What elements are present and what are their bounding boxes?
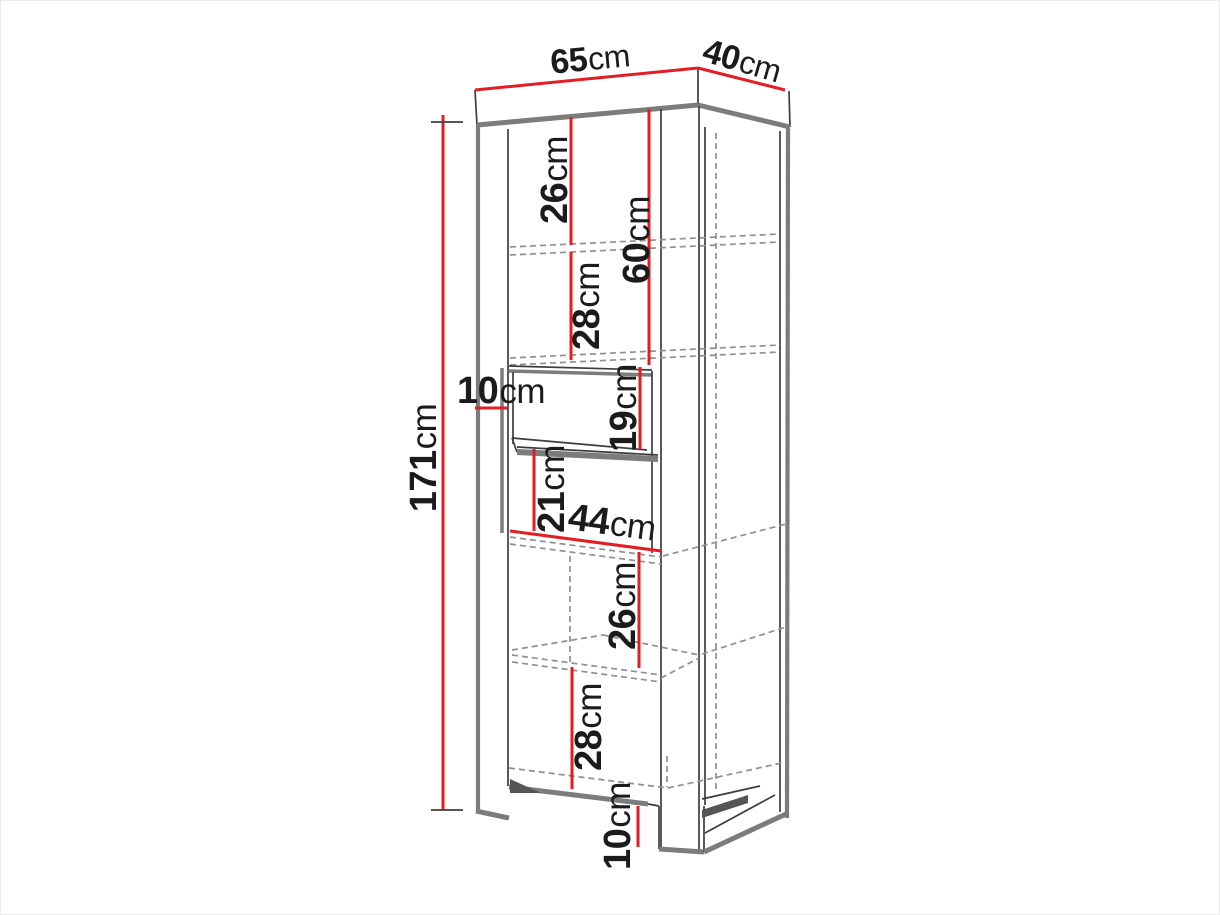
shelf4-right-dashed — [661, 658, 699, 678]
dim-label-second-compartment: 28cm — [566, 262, 608, 350]
dim-label-lower-compartment: 26cm — [602, 562, 644, 650]
dim-unit: cm — [533, 445, 572, 491]
dim-value: 60 — [616, 243, 658, 284]
dim-unit: cm — [605, 364, 644, 410]
dim-value: 26 — [534, 183, 576, 224]
dim-label-wall-depth: 10cm — [457, 370, 545, 412]
shelf4-side-depth-dashed — [702, 627, 786, 654]
dim-unit: cm — [499, 372, 545, 411]
shelf4-back-dashed — [512, 635, 603, 650]
fixed-shelf-left-end — [512, 438, 517, 452]
shelf2-top-dashed — [510, 345, 780, 358]
dim-unit: cm — [586, 37, 631, 77]
dim-unit: cm — [735, 43, 785, 89]
notch-step-line — [648, 804, 659, 806]
dim-value: 10 — [597, 829, 639, 870]
side-right-outer-edge — [787, 128, 788, 818]
diagram-canvas: 65cm 40cm 171cm 26cm 60cm 28cm 10cm 19cm… — [0, 0, 1220, 915]
dim-label-upper-compartment: 26cm — [534, 136, 576, 224]
dim-value: 26 — [602, 609, 644, 650]
dim-unit: cm — [599, 782, 638, 828]
dim-label-top-depth: 40cm — [699, 32, 786, 90]
dim-label-upper-section: 60cm — [616, 196, 658, 284]
side-recess-top-line — [702, 786, 760, 799]
dim-value: 10 — [457, 370, 498, 412]
top-slab-bottom-front-edge — [477, 105, 698, 125]
top-slab-bottom-right-edge — [698, 105, 790, 127]
side-recess-shadow-bar — [702, 795, 748, 818]
dim-label-total-height: 171cm — [403, 404, 445, 513]
dim-unit: cm — [570, 683, 609, 729]
dim-unit: cm — [608, 503, 658, 548]
top-slab-right-edge — [789, 91, 790, 127]
dim-unit: cm — [405, 404, 444, 450]
dim-label-bottom-compartment: 28cm — [568, 683, 610, 771]
bottom-panel-hidden-depth — [668, 762, 786, 788]
top-slab-left-edge — [475, 90, 477, 125]
dim-value: 19 — [603, 411, 645, 452]
dim-label-plinth-height: 10cm — [597, 782, 639, 870]
left-foot-bottom-edge — [476, 811, 509, 818]
dim-unit: cm — [536, 136, 575, 182]
dim-unit: cm — [604, 562, 643, 608]
shelf3-depth-dashed — [663, 524, 786, 556]
dim-value: 44 — [566, 496, 613, 543]
dim-label-niche-upper: 19cm — [603, 364, 645, 452]
left-recess-shadow — [510, 779, 541, 793]
shelf2-bottom-dashed — [510, 352, 780, 365]
dim-unit: cm — [568, 262, 607, 308]
side-bottom-outer-edge — [704, 814, 786, 852]
dim-value: 65 — [549, 40, 589, 81]
dim-value: 28 — [566, 309, 608, 350]
cabinet-dimension-drawing: 65cm 40cm 171cm 26cm 60cm 28cm 10cm 19cm… — [0, 0, 1220, 915]
dim-value: 28 — [568, 730, 610, 771]
dim-label-niche-lower: 21cm — [531, 445, 573, 533]
right-foot-bottom-edge — [659, 849, 704, 852]
dim-unit: cm — [618, 196, 657, 242]
dim-value: 171 — [403, 450, 445, 512]
